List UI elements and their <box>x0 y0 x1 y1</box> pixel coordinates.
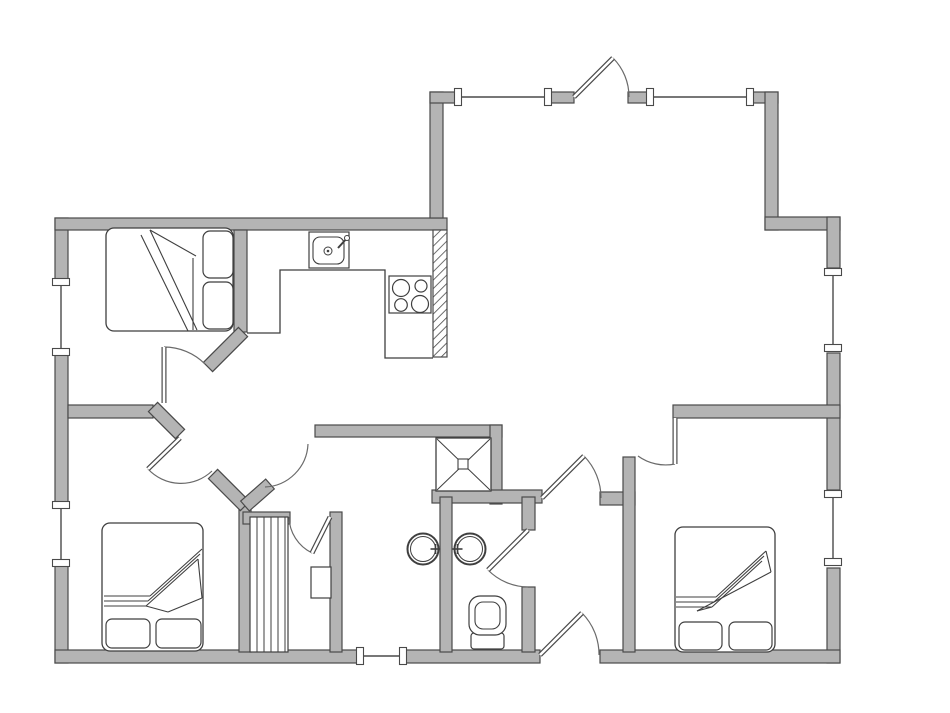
wall <box>239 505 251 652</box>
wall <box>430 92 458 103</box>
window-jamb-cap <box>53 279 70 286</box>
wall <box>673 405 840 418</box>
window-jamb-cap <box>747 89 754 106</box>
pillow <box>203 231 233 278</box>
sauna-heater <box>311 567 331 598</box>
stove-burner <box>395 299 408 312</box>
bed-bottom-left <box>102 523 203 651</box>
window-jamb-cap <box>825 345 842 352</box>
sink-drain-dot <box>327 250 330 253</box>
stove-burner <box>415 280 427 292</box>
wall <box>403 650 540 663</box>
wall <box>68 405 153 418</box>
window-jamb-cap <box>357 648 364 665</box>
window-jamb-cap <box>53 502 70 509</box>
pillow <box>106 619 150 648</box>
window-jamb-cap <box>400 648 407 665</box>
kitchen-sink <box>309 232 350 268</box>
pillow <box>729 622 772 650</box>
window-jamb-cap <box>647 89 654 106</box>
toilet <box>469 596 506 649</box>
bed-right <box>675 527 775 652</box>
wall <box>55 650 360 663</box>
window-jamb-cap <box>825 269 842 276</box>
pillow <box>156 619 201 648</box>
wall <box>55 352 68 505</box>
chimney-center <box>458 459 468 469</box>
wall <box>827 217 840 268</box>
wall <box>315 425 502 437</box>
window-jamb-cap <box>825 491 842 498</box>
floor-plan-canvas <box>0 0 950 713</box>
stove-burner <box>412 296 429 313</box>
wall <box>765 92 778 230</box>
window-jamb-cap <box>53 560 70 567</box>
window-jamb-cap <box>53 349 70 356</box>
sauna-bench <box>250 517 288 652</box>
wall <box>430 92 443 218</box>
chimney-flue <box>436 438 491 491</box>
wall <box>330 512 342 652</box>
stove-burner <box>393 280 410 297</box>
wall <box>522 587 535 652</box>
pillow <box>203 282 233 329</box>
stove <box>389 276 431 313</box>
wall <box>234 230 247 332</box>
hatched-wall <box>433 230 447 357</box>
window-jamb-cap <box>825 559 842 566</box>
wall <box>827 568 840 663</box>
wall <box>827 353 840 490</box>
window-jamb-cap <box>545 89 552 106</box>
pillow <box>679 622 722 650</box>
wall <box>522 497 535 530</box>
window-jamb-cap <box>455 89 462 106</box>
bed-top-left <box>106 228 233 331</box>
wall <box>440 497 452 652</box>
sink-faucet-knob <box>345 236 350 241</box>
floor-plan-svg <box>0 0 950 713</box>
wall <box>623 457 635 652</box>
toilet-bowl-inner <box>475 602 500 629</box>
wall <box>55 563 68 663</box>
